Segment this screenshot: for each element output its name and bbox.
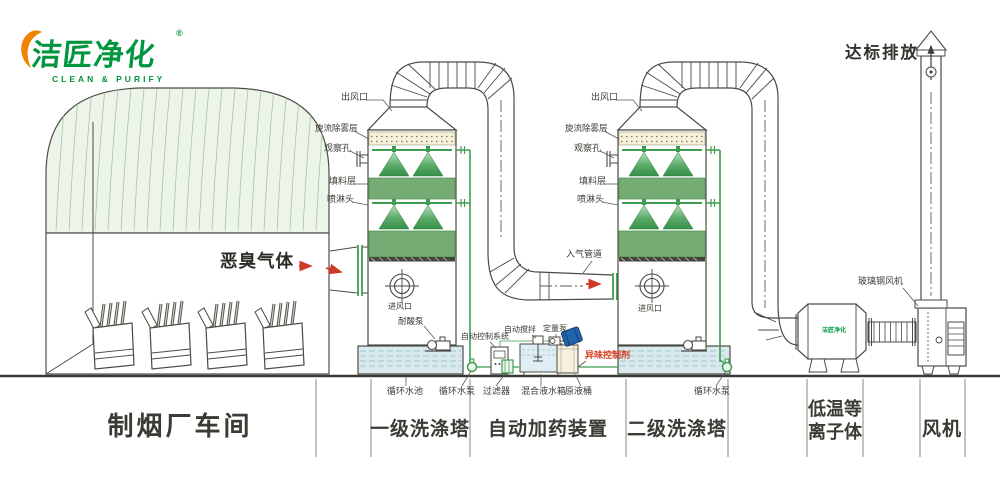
t1-window-label: 观察孔 <box>324 144 351 154</box>
t2-outlet-label: 出风口 <box>591 93 618 103</box>
plasma-device-logo: 洁匠净化 <box>814 325 854 334</box>
control-system-label: 自动控制系统 <box>461 333 509 342</box>
frp-fan-unit <box>918 308 966 374</box>
t2-spray-label: 喷淋头 <box>577 195 604 205</box>
plasma-outlet-bellows <box>868 318 916 346</box>
barrel-label: 原液桶 <box>565 387 592 397</box>
registered-mark: ® <box>176 28 183 38</box>
pool1-label: 循环水池 <box>387 387 423 397</box>
process-flow-diagram: 洁匠净化 ® CLEAN & PURIFY 达标排放 恶臭气体 出风口 旋流除雾… <box>0 0 1000 482</box>
emission-label: 达标排放 <box>845 44 919 62</box>
section-factory: 制烟厂车间 <box>95 406 265 443</box>
pump1-label: 循环水泵 <box>439 387 475 397</box>
t1-demister-label: 旋流除雾层 <box>315 124 358 133</box>
t1-inlet-label: 进风口 <box>388 303 412 312</box>
brand-name: 洁匠净化 <box>30 30 159 74</box>
metering-pump <box>549 337 560 345</box>
stirrer-label: 自动搅拌 <box>504 326 536 335</box>
mixing-tank <box>520 344 562 372</box>
section-fan: 风机 <box>902 414 982 441</box>
t1-packing-label: 填料层 <box>329 177 356 187</box>
inlet-duct-label: 入气管道 <box>566 250 602 260</box>
filter-label: 过滤器 <box>483 387 510 397</box>
filter-unit <box>502 360 513 373</box>
brand-tagline: CLEAN & PURIFY <box>18 74 208 84</box>
odor-gas-label: 恶臭气体 <box>220 252 294 271</box>
frp-fan-label: 玻璃钢风机 <box>858 277 903 287</box>
acid-pump-label: 耐酸泵 <box>398 317 424 326</box>
tank-label: 混合液水箱 <box>521 387 566 397</box>
t2-inlet-label: 进风口 <box>638 305 662 314</box>
tower2-basin <box>618 346 730 374</box>
t1-spray-label: 喷淋头 <box>327 195 354 205</box>
t1-outlet-label: 出风口 <box>341 93 368 103</box>
scrubber-tower-2 <box>607 107 720 362</box>
fan-motor <box>948 322 964 355</box>
factory-building <box>46 88 329 374</box>
section-plasma: 低温等离子体 <box>806 398 864 443</box>
plasma-device <box>798 304 916 372</box>
metering-pump-label: 定量泵 <box>543 325 567 334</box>
pump2-label: 循环水泵 <box>694 387 730 397</box>
brand-logo: 洁匠净化 ® CLEAN & PURIFY <box>18 30 208 84</box>
odor-agent-label: 异味控制剂 <box>585 351 630 361</box>
exhaust-stack <box>915 31 947 308</box>
section-tower2: 二级洗涤塔 <box>602 414 752 441</box>
t2-demister-label: 旋流除雾层 <box>565 124 608 133</box>
t2-packing-label: 填料层 <box>579 177 606 187</box>
t2-window-label: 观察孔 <box>574 144 601 154</box>
circ-pump-1 <box>468 359 477 372</box>
